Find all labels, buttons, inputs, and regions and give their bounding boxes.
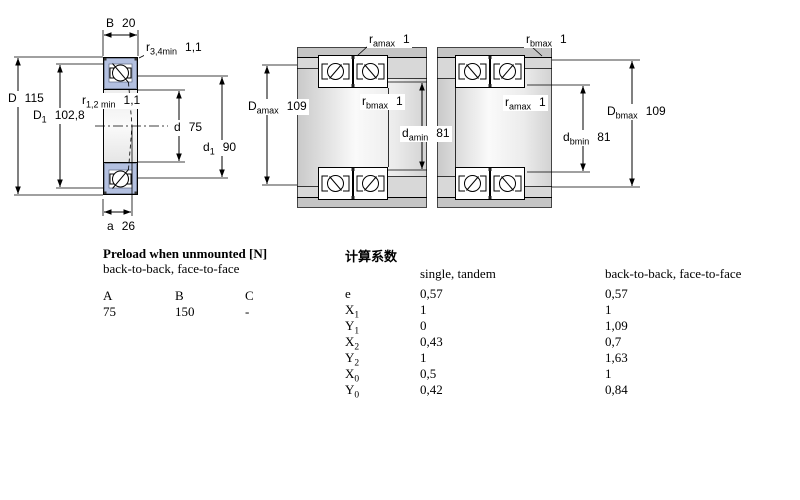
preload-col-c: C (245, 288, 254, 304)
factors-col-single: single, tandem (420, 266, 605, 282)
dim-label-rbmax-b: rbmax1 (524, 32, 569, 48)
factor-paired-value: 0,7 (605, 334, 621, 350)
factor-base: X (345, 366, 354, 382)
factor-single-value: 0,43 (420, 334, 605, 350)
dim-sub: bmin (570, 136, 590, 146)
dim-label-d: d75 (172, 120, 204, 136)
preload-table: Preload when unmounted [N] back-to-back,… (103, 246, 338, 320)
factor-single-value: 0 (420, 318, 605, 334)
dim-value: 115 (25, 91, 44, 105)
factor-symbol: Y0 (345, 382, 420, 401)
dim-value: 102,8 (55, 108, 85, 122)
dim-value: 26 (122, 219, 135, 233)
factor-row-Y2: Y2 1 1,63 (345, 350, 785, 366)
dim-base: d (563, 130, 570, 144)
dim-value: 75 (189, 120, 202, 134)
dim-sub: 1 (210, 146, 215, 156)
dim-label-Damax: Damax109 (246, 99, 309, 115)
dim-sub: bmax (366, 100, 388, 110)
dim-base: d (174, 120, 181, 134)
dim-base: D (248, 99, 257, 113)
dim-sub: amax (509, 101, 531, 111)
factor-row-X2: X2 0,43 0,7 (345, 334, 785, 350)
dim-sub: amax (373, 38, 395, 48)
dim-value: 81 (597, 130, 610, 144)
dim-base: d (203, 140, 210, 154)
dim-sub: amax (257, 105, 279, 115)
factor-paired-value: 0,57 (605, 286, 628, 302)
dim-value: 1,1 (185, 40, 202, 54)
dim-label-damin: damin81 (400, 126, 452, 142)
factor-base: Y (345, 350, 354, 366)
factor-row-e: e 0,57 0,57 (345, 286, 785, 302)
factors-col-paired: back-to-back, face-to-face (605, 266, 741, 282)
factor-single-value: 0,57 (420, 286, 605, 302)
mounting-diagram-b (437, 46, 640, 208)
factor-base: X (345, 334, 354, 350)
dim-base: D (33, 108, 42, 122)
dim-value: 1,1 (124, 93, 141, 107)
factor-row-X1: X1 1 1 (345, 302, 785, 318)
factor-sub: 0 (354, 391, 359, 401)
factor-paired-value: 1,63 (605, 350, 628, 366)
dim-base: B (106, 16, 114, 30)
preload-value-row: 75 150 - (103, 304, 338, 320)
dim-label-r34min: r3,4min1,1 (144, 40, 204, 56)
dim-value: 1 (396, 94, 403, 108)
preload-col-a: A (103, 288, 175, 304)
dim-base: d (402, 126, 409, 140)
factor-base: X (345, 302, 354, 318)
dim-base: D (607, 104, 616, 118)
factor-single-value: 0,42 (420, 382, 605, 398)
dim-label-rbmax-a: rbmax1 (360, 94, 405, 110)
factor-base: Y (345, 382, 354, 398)
dim-value: 20 (122, 16, 135, 30)
dim-label-ramax-b: ramax1 (503, 95, 548, 111)
factor-single-value: 1 (420, 302, 605, 318)
datasheet-page: { "diagrams": { "front_view": { "labels"… (0, 0, 800, 500)
factor-base: e (345, 286, 351, 302)
factor-paired-value: 1,09 (605, 318, 628, 334)
dim-value: 1 (403, 32, 410, 46)
dim-label-ramax-a: ramax1 (367, 32, 412, 48)
dim-sub: bmax (616, 110, 638, 120)
dim-sub: bmax (530, 38, 552, 48)
factor-paired-value: 0,84 (605, 382, 628, 398)
dim-value: 109 (287, 99, 307, 113)
factor-paired-value: 1 (605, 366, 612, 382)
dim-value: 109 (646, 104, 666, 118)
dim-sub: amin (409, 132, 429, 142)
preload-value-b: 150 (175, 304, 245, 320)
calculation-factors-table: 计算系数 single, tandem back-to-back, face-t… (345, 246, 785, 398)
preload-value-a: 75 (103, 304, 175, 320)
factors-header-row: single, tandem back-to-back, face-to-fac… (345, 266, 785, 282)
dim-label-B: B20 (104, 16, 137, 32)
dim-value: 81 (436, 126, 449, 140)
dim-sub: 1,2 min (86, 99, 116, 109)
factor-base: Y (345, 318, 354, 334)
dim-label-a: a26 (105, 219, 137, 235)
factor-row-Y0: Y0 0,42 0,84 (345, 382, 785, 398)
dim-label-Dbmax: Dbmax109 (605, 104, 668, 120)
dim-base: D (8, 91, 17, 105)
dim-label-r12min: r1,2 min1,1 (80, 93, 142, 109)
dim-value: 1 (539, 95, 546, 109)
dim-value: 1 (560, 32, 567, 46)
dim-value: 90 (223, 140, 236, 154)
dim-label-dbmin: dbmin81 (561, 130, 613, 146)
factor-row-X0: X0 0,5 1 (345, 366, 785, 382)
factor-paired-value: 1 (605, 302, 612, 318)
preload-title: Preload when unmounted [N] (103, 246, 338, 261)
dim-label-D1: D1102,8 (31, 108, 87, 124)
factors-title: 计算系数 (345, 246, 785, 261)
dim-base: a (107, 219, 114, 233)
preload-header-row: A B C (103, 288, 338, 304)
factor-single-value: 0,5 (420, 366, 605, 382)
factor-single-value: 1 (420, 350, 605, 366)
preload-col-b: B (175, 288, 245, 304)
dim-label-D: D115 (6, 91, 46, 107)
dim-sub: 3,4min (150, 46, 177, 56)
preload-value-c: - (245, 304, 249, 320)
preload-subtitle: back-to-back, face-to-face (103, 261, 338, 276)
dim-sub: 1 (42, 114, 47, 124)
dim-label-d1: d190 (201, 140, 238, 156)
factor-row-Y1: Y1 0 1,09 (345, 318, 785, 334)
